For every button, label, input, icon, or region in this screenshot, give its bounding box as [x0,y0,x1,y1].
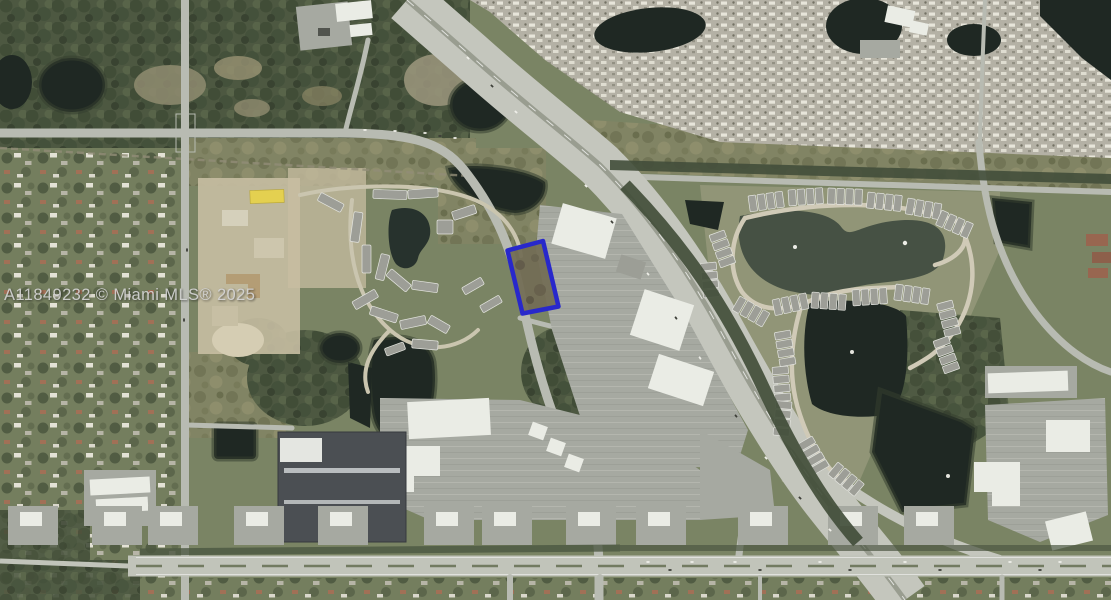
aerial-imagery [0,0,1111,600]
atmosphere-haze [0,0,1111,600]
satellite-map: A11849232 © Miami MLS® 2025 [0,0,1111,600]
